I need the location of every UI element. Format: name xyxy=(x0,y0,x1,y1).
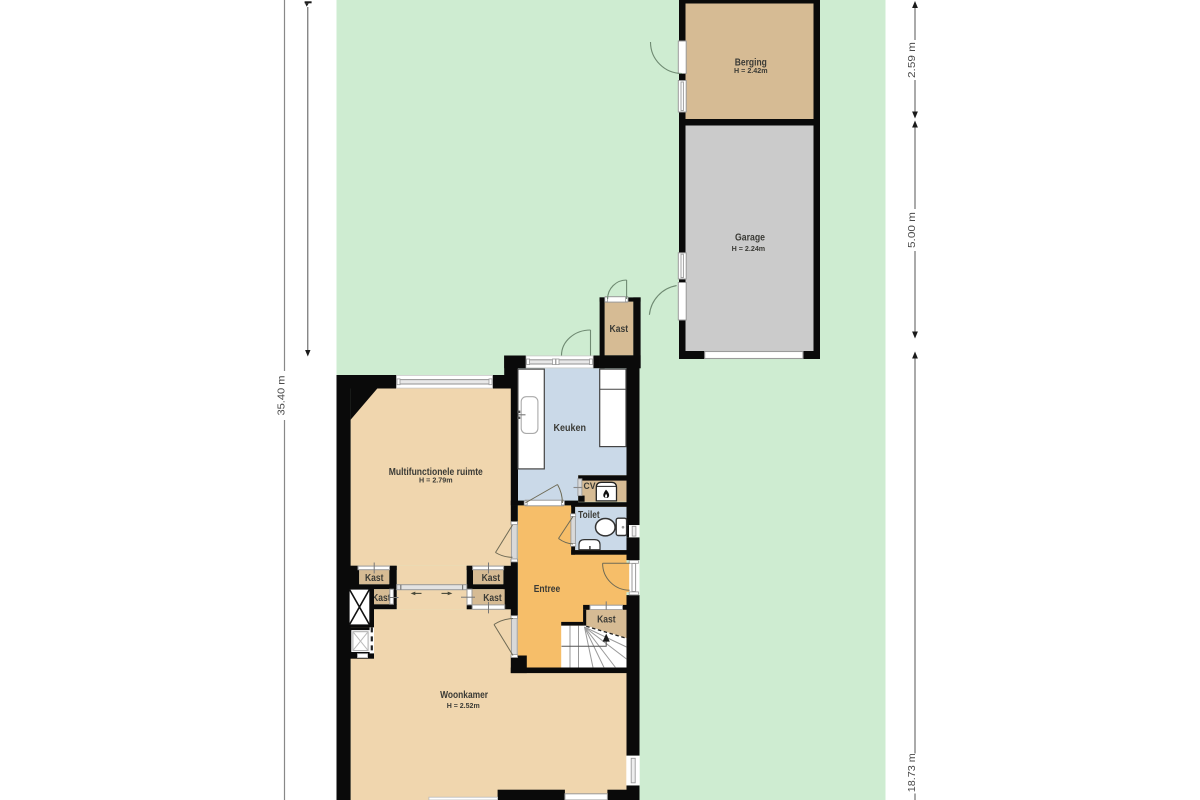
svg-text:35.40 m: 35.40 m xyxy=(277,376,288,416)
svg-text:5.00 m: 5.00 m xyxy=(907,212,918,248)
svg-text:18.73 m: 18.73 m xyxy=(907,753,918,792)
svg-text:Kast: Kast xyxy=(365,573,384,584)
svg-text:H = 2.79m: H = 2.79m xyxy=(419,475,453,484)
svg-text:Toilet: Toilet xyxy=(578,510,600,521)
svg-text:H = 2.42m: H = 2.42m xyxy=(734,66,768,75)
svg-text:2.59 m: 2.59 m xyxy=(907,42,918,78)
svg-text:Woonkamer: Woonkamer xyxy=(440,690,488,701)
svg-text:Kast: Kast xyxy=(372,593,391,604)
svg-text:CV: CV xyxy=(584,481,596,491)
svg-text:Kast: Kast xyxy=(610,324,629,335)
svg-text:Kast: Kast xyxy=(597,614,616,625)
svg-text:Entree: Entree xyxy=(534,584,561,595)
svg-text:H = 2.52m: H = 2.52m xyxy=(447,701,480,710)
svg-text:Kast: Kast xyxy=(483,593,502,604)
svg-text:Kast: Kast xyxy=(482,573,501,584)
svg-text:H = 2.24m: H = 2.24m xyxy=(732,244,766,253)
svg-text:Keuken: Keuken xyxy=(554,423,587,434)
svg-text:Garage: Garage xyxy=(735,233,765,244)
